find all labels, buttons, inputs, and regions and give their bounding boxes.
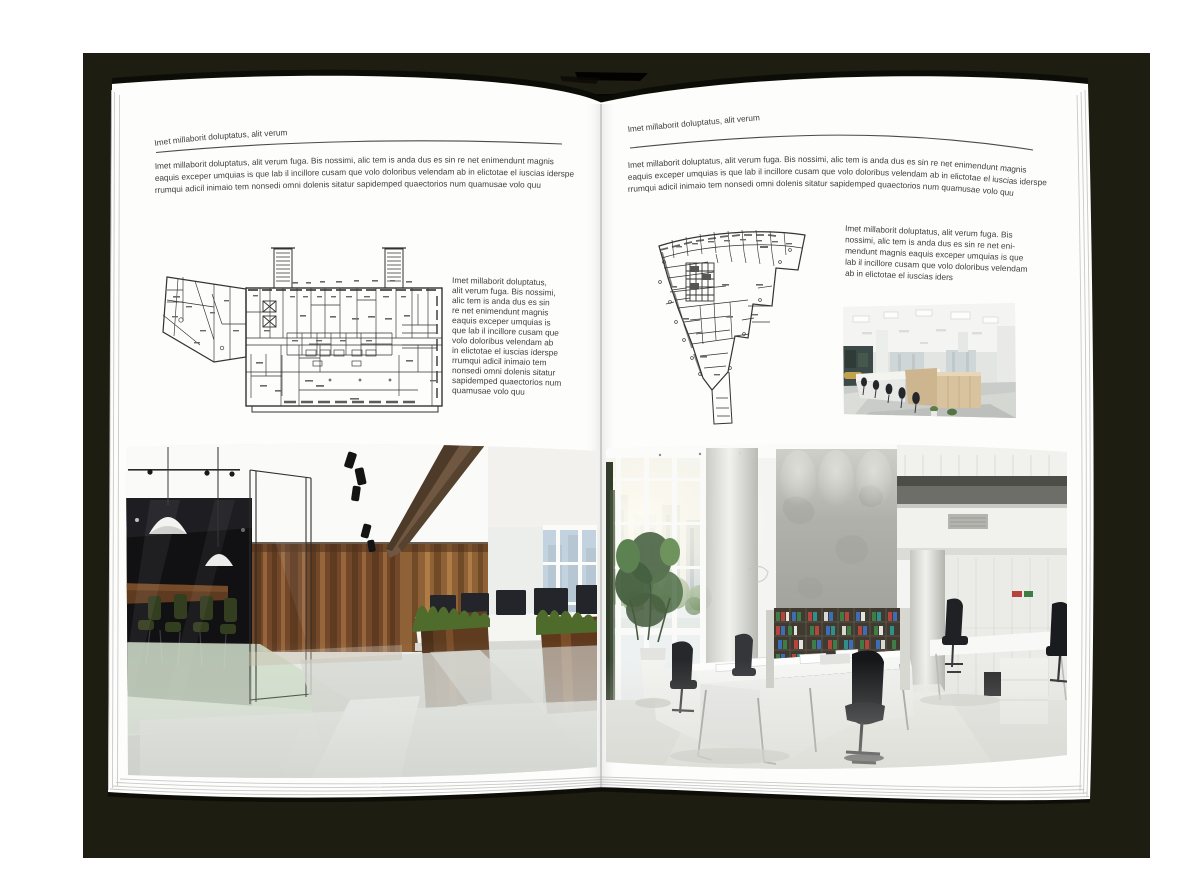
svg-text:quamusae volo quu: quamusae volo quu [452,385,525,397]
